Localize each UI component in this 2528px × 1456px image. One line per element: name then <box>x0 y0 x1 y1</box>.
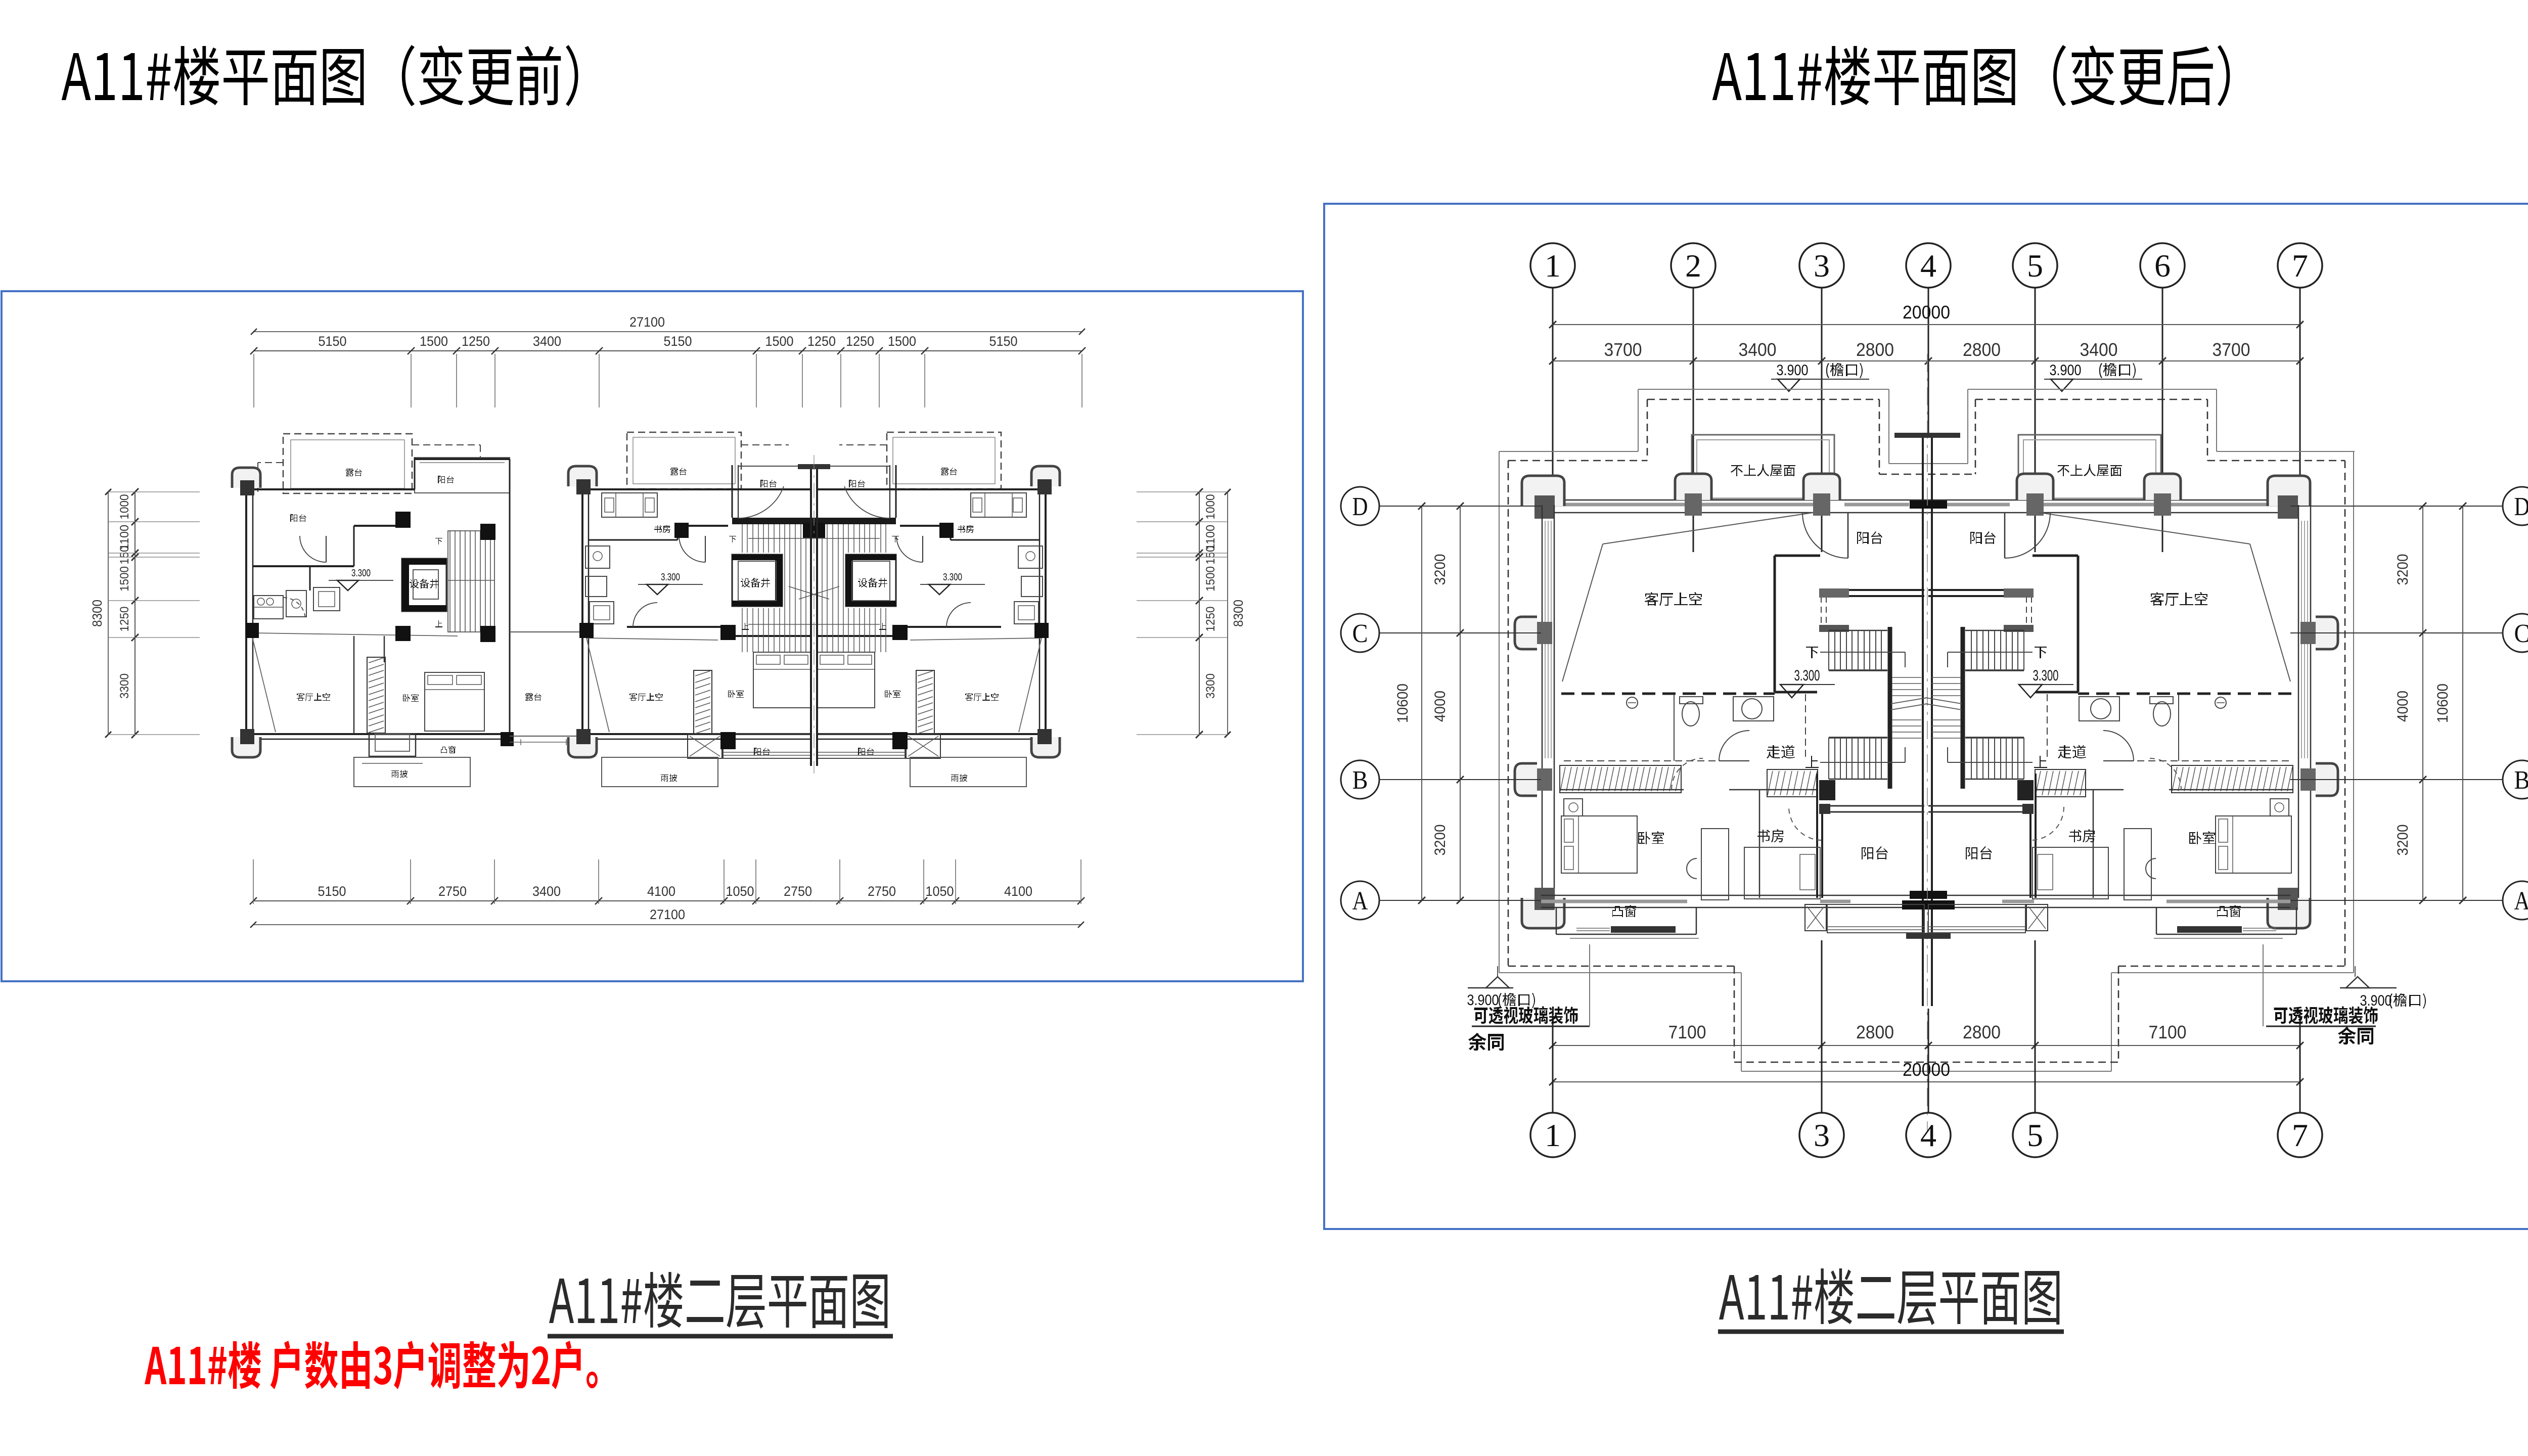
svg-text:3200: 3200 <box>1432 825 1449 856</box>
svg-text:3.300: 3.300 <box>661 572 680 583</box>
svg-text:3: 3 <box>1814 248 1830 284</box>
svg-text:A: A <box>2514 887 2528 916</box>
svg-text:B: B <box>2514 766 2528 795</box>
svg-text:1: 1 <box>1545 1117 1561 1153</box>
svg-text:3200: 3200 <box>2395 825 2411 856</box>
svg-text:2750: 2750 <box>784 884 812 899</box>
svg-text:5150: 5150 <box>664 334 692 349</box>
svg-text:8300: 8300 <box>89 600 105 627</box>
svg-text:20000: 20000 <box>1903 302 1950 323</box>
svg-text:7100: 7100 <box>2149 1022 2187 1042</box>
svg-text:1250: 1250 <box>118 607 131 632</box>
svg-text:2800: 2800 <box>1856 339 1894 360</box>
svg-text:1500: 1500 <box>1204 566 1217 591</box>
svg-text:1000: 1000 <box>1204 494 1217 520</box>
svg-text:1250: 1250 <box>462 334 490 349</box>
svg-text:3.300: 3.300 <box>2033 667 2059 684</box>
svg-text:5150: 5150 <box>318 884 346 899</box>
svg-text:C: C <box>1352 619 1368 648</box>
svg-text:3300: 3300 <box>1204 673 1217 699</box>
svg-text:6: 6 <box>2154 248 2171 284</box>
svg-text:5150: 5150 <box>989 334 1018 349</box>
svg-text:1250: 1250 <box>846 334 874 349</box>
svg-text:2750: 2750 <box>438 884 467 899</box>
svg-text:7: 7 <box>2292 1117 2308 1153</box>
svg-text:3300: 3300 <box>118 673 131 699</box>
svg-text:D: D <box>2514 492 2528 521</box>
svg-text:3400: 3400 <box>2080 339 2118 360</box>
svg-text:1500: 1500 <box>118 566 131 591</box>
svg-text:1250: 1250 <box>807 334 836 349</box>
svg-text:3400: 3400 <box>532 884 561 899</box>
svg-text:5150: 5150 <box>319 334 347 349</box>
svg-text:3.300: 3.300 <box>943 572 962 583</box>
svg-text:10600: 10600 <box>2434 684 2451 723</box>
svg-text:2: 2 <box>1685 248 1701 284</box>
svg-text:2800: 2800 <box>1963 1022 2001 1042</box>
svg-text:1000: 1000 <box>118 494 131 520</box>
svg-text:4: 4 <box>1920 1117 1936 1153</box>
svg-text:C: C <box>2514 619 2528 648</box>
svg-text:150: 150 <box>1204 546 1217 565</box>
svg-text:3.900: 3.900 <box>2360 992 2392 1009</box>
svg-text:3400: 3400 <box>1739 339 1777 360</box>
svg-text:1050: 1050 <box>726 884 754 899</box>
svg-text:5: 5 <box>2027 1117 2043 1153</box>
svg-text:7: 7 <box>2292 248 2308 284</box>
svg-text:5: 5 <box>2027 248 2043 284</box>
svg-text:3.300: 3.300 <box>1794 667 1820 684</box>
svg-text:4100: 4100 <box>1004 884 1032 899</box>
svg-text:4000: 4000 <box>2395 691 2411 722</box>
svg-text:7100: 7100 <box>1668 1022 1706 1042</box>
svg-text:20000: 20000 <box>1903 1059 1950 1080</box>
svg-text:150: 150 <box>118 546 131 565</box>
svg-text:2800: 2800 <box>1856 1022 1894 1042</box>
svg-text:3700: 3700 <box>2213 339 2250 360</box>
svg-text:3.300: 3.300 <box>351 568 371 579</box>
svg-text:27100: 27100 <box>650 907 685 922</box>
svg-text:B: B <box>1352 766 1368 795</box>
svg-text:1500: 1500 <box>420 334 448 349</box>
svg-text:3.900: 3.900 <box>1777 362 1809 379</box>
svg-text:1: 1 <box>1545 248 1561 284</box>
svg-text:10600: 10600 <box>1394 684 1411 723</box>
svg-text:3: 3 <box>1814 1117 1830 1153</box>
svg-text:3700: 3700 <box>1604 339 1642 360</box>
svg-text:1500: 1500 <box>765 334 794 349</box>
svg-text:4000: 4000 <box>1432 691 1449 722</box>
svg-text:2800: 2800 <box>1963 339 2001 360</box>
svg-text:3400: 3400 <box>533 334 561 349</box>
svg-text:3.900: 3.900 <box>1467 992 1499 1009</box>
svg-text:3.900: 3.900 <box>2050 362 2082 379</box>
svg-text:4: 4 <box>1920 248 1936 284</box>
svg-text:3200: 3200 <box>1432 554 1449 585</box>
svg-text:D: D <box>1352 492 1368 521</box>
svg-text:1500: 1500 <box>888 334 916 349</box>
svg-text:4100: 4100 <box>647 884 675 899</box>
svg-text:27100: 27100 <box>629 314 665 330</box>
svg-text:A: A <box>1352 887 1368 916</box>
svg-text:3200: 3200 <box>2395 554 2411 585</box>
svg-text:1250: 1250 <box>1204 607 1217 632</box>
svg-text:1050: 1050 <box>926 884 954 899</box>
svg-text:8300: 8300 <box>1231 600 1246 627</box>
svg-text:2750: 2750 <box>868 884 896 899</box>
